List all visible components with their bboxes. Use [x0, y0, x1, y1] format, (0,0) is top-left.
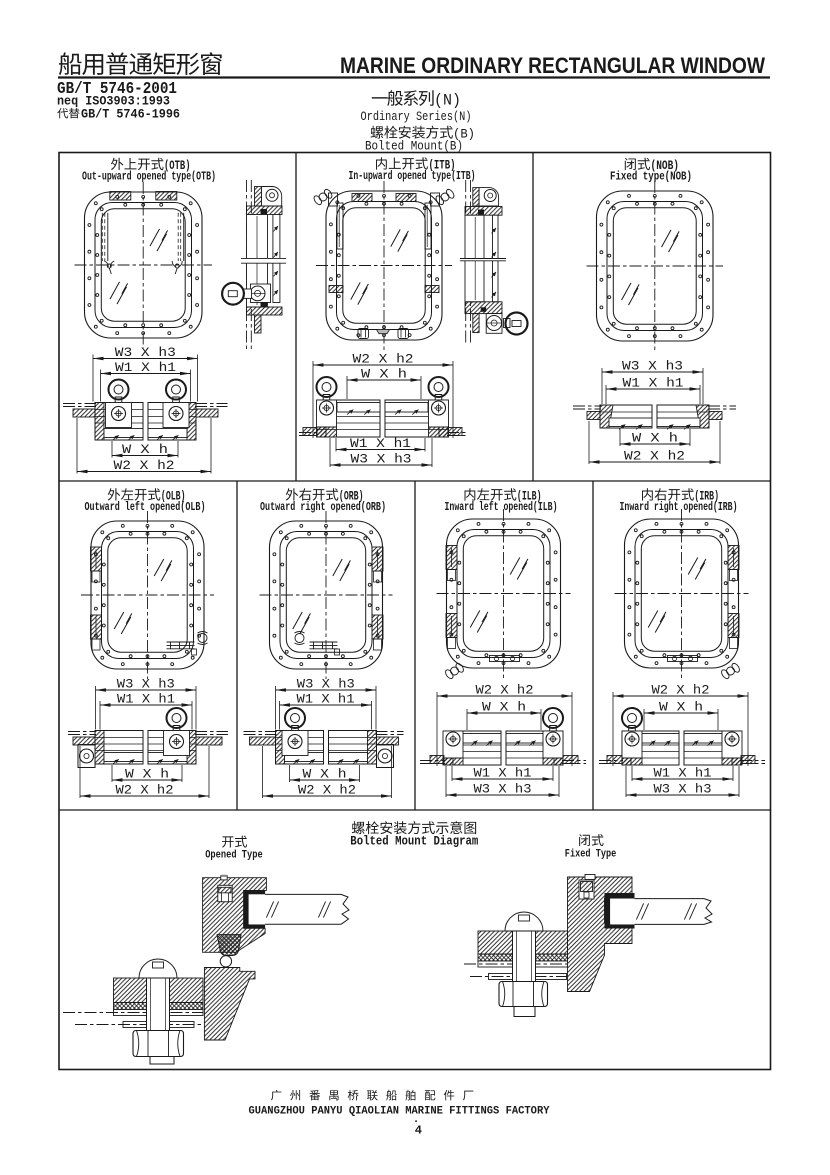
svg-text:neq ISO3903:1993: neq ISO3903:1993 — [57, 95, 170, 109]
svg-text:Outward right opened(ORB): Outward right opened(ORB) — [260, 501, 386, 514]
svg-text:W1 X h1: W1 X h1 — [350, 437, 411, 451]
svg-text:W2 X h2: W2 X h2 — [476, 684, 534, 698]
svg-text:Bolted Mount Diagram: Bolted Mount Diagram — [350, 835, 478, 849]
svg-text:W1 X h1: W1 X h1 — [474, 767, 532, 781]
svg-text:W3 X h3: W3 X h3 — [115, 346, 176, 360]
svg-text:W X h: W X h — [482, 701, 526, 715]
svg-text:W2 X h2: W2 X h2 — [652, 684, 710, 698]
svg-text:W X h: W X h — [361, 368, 407, 382]
svg-text:W1 X h1: W1 X h1 — [115, 361, 176, 375]
svg-text:Fixed type(NOB): Fixed type(NOB) — [610, 171, 692, 184]
svg-text:W2 X h2: W2 X h2 — [298, 784, 356, 798]
svg-text:W2 X h2: W2 X h2 — [114, 459, 175, 473]
svg-text:Inward left opened(ILB): Inward left opened(ILB) — [445, 501, 558, 514]
svg-text:W1 X h1: W1 X h1 — [623, 377, 684, 391]
svg-text:Opened Type: Opened Type — [205, 850, 263, 862]
svg-text:W3 X h3: W3 X h3 — [297, 678, 355, 692]
svg-text:W3 X h3: W3 X h3 — [117, 678, 175, 692]
svg-text:W3 X h3: W3 X h3 — [474, 783, 532, 797]
svg-text:Ordinary Series(N): Ordinary Series(N) — [361, 110, 472, 124]
svg-text:W1 X h1: W1 X h1 — [297, 693, 355, 707]
svg-text:MARINE ORDINARY RECTANGULAR WI: MARINE ORDINARY RECTANGULAR WINDOW — [340, 53, 766, 78]
svg-text:W X h: W X h — [125, 768, 169, 782]
svg-text:W X h: W X h — [122, 443, 168, 457]
svg-text:W X h: W X h — [303, 768, 347, 782]
svg-text:GUANGZHOU PANYU QIAOLIAN MARIN: GUANGZHOU PANYU QIAOLIAN MARINE FITTINGS… — [249, 1106, 550, 1118]
svg-text:W X h: W X h — [659, 701, 703, 715]
svg-text:Outward left opened(OLB): Outward left opened(OLB) — [85, 501, 206, 514]
svg-text:(N): (N) — [434, 92, 461, 110]
svg-text:GB/T 5746-1996: GB/T 5746-1996 — [81, 108, 180, 122]
svg-text:Inward right opened(IRB): Inward right opened(IRB) — [620, 501, 738, 514]
svg-text:In-upward opened type(ITB): In-upward opened type(ITB) — [349, 170, 476, 183]
svg-text:W3 X h3: W3 X h3 — [622, 360, 683, 374]
svg-text:Bolted Mount(B): Bolted Mount(B) — [365, 140, 463, 154]
svg-text:W1 X h1: W1 X h1 — [117, 693, 175, 707]
svg-text:W3 X h3: W3 X h3 — [351, 453, 412, 467]
svg-text:Fixed Type: Fixed Type — [565, 849, 617, 861]
svg-text:Out-upward opened type(OTB): Out-upward opened type(OTB) — [82, 171, 216, 184]
svg-text:W3 X h3: W3 X h3 — [654, 783, 712, 797]
svg-text:4: 4 — [415, 1124, 422, 1138]
svg-text:W2 X h2: W2 X h2 — [624, 450, 685, 464]
svg-text:W X h: W X h — [632, 432, 678, 446]
svg-text:W2 X h2: W2 X h2 — [353, 353, 414, 367]
svg-text:W1 X h1: W1 X h1 — [654, 767, 712, 781]
svg-text:W2 X h2: W2 X h2 — [116, 784, 174, 798]
